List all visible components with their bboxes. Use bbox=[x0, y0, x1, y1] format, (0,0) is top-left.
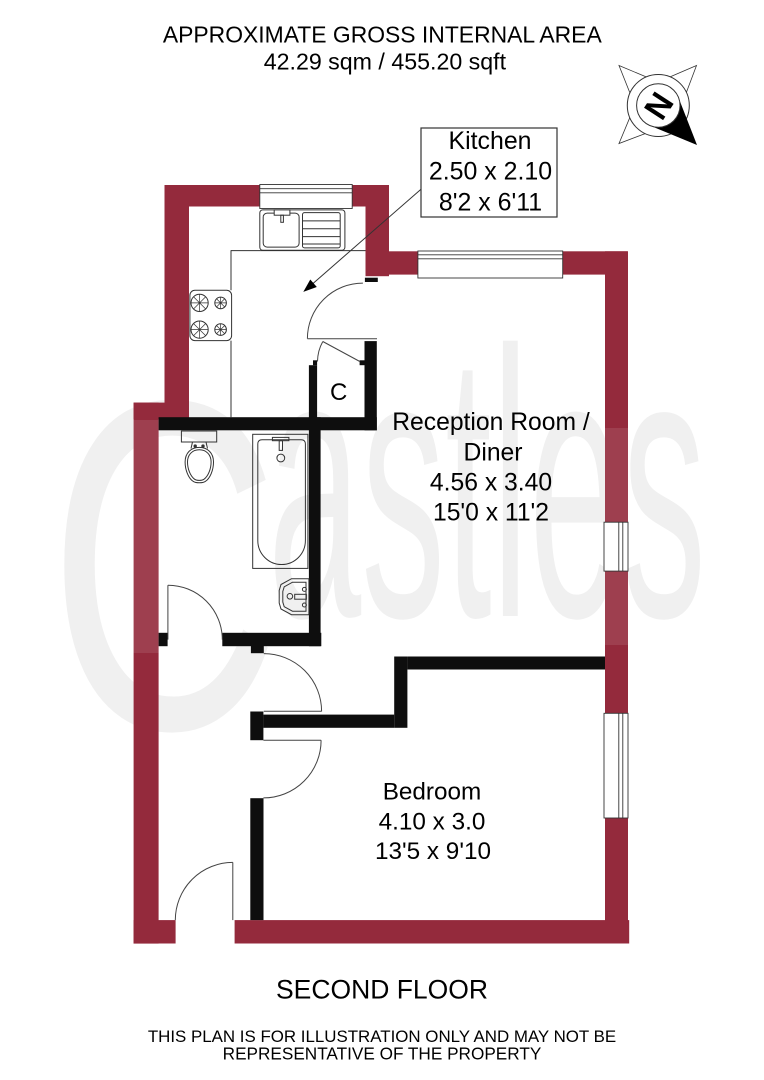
svg-text:15'0 x 11'2: 15'0 x 11'2 bbox=[433, 500, 549, 527]
svg-text:2.50 x 2.10: 2.50 x 2.10 bbox=[429, 157, 552, 185]
svg-text:Kitchen: Kitchen bbox=[448, 127, 531, 155]
svg-text:4.56 x 3.40: 4.56 x 3.40 bbox=[430, 470, 552, 497]
svg-text:42.29 sqm / 455.20 sqft: 42.29 sqm / 455.20 sqft bbox=[264, 49, 507, 75]
svg-text:Bedroom: Bedroom bbox=[383, 779, 482, 806]
svg-text:SECOND FLOOR: SECOND FLOOR bbox=[276, 975, 488, 1005]
svg-text:REPRESENTATIVE OF THE PROPERTY: REPRESENTATIVE OF THE PROPERTY bbox=[223, 1044, 542, 1064]
svg-text:Diner: Diner bbox=[464, 439, 523, 466]
svg-text:C: C bbox=[48, 303, 280, 828]
svg-text:13'5 x 9'10: 13'5 x 9'10 bbox=[375, 838, 491, 865]
svg-text:Reception Room /: Reception Room / bbox=[392, 409, 590, 436]
svg-text:APPROXIMATE GROSS INTERNAL ARE: APPROXIMATE GROSS INTERNAL AREA bbox=[163, 22, 603, 48]
svg-text:8'2 x 6'11: 8'2 x 6'11 bbox=[439, 188, 542, 216]
svg-text:C: C bbox=[330, 379, 347, 406]
svg-text:4.10 x 3.0: 4.10 x 3.0 bbox=[379, 809, 486, 836]
